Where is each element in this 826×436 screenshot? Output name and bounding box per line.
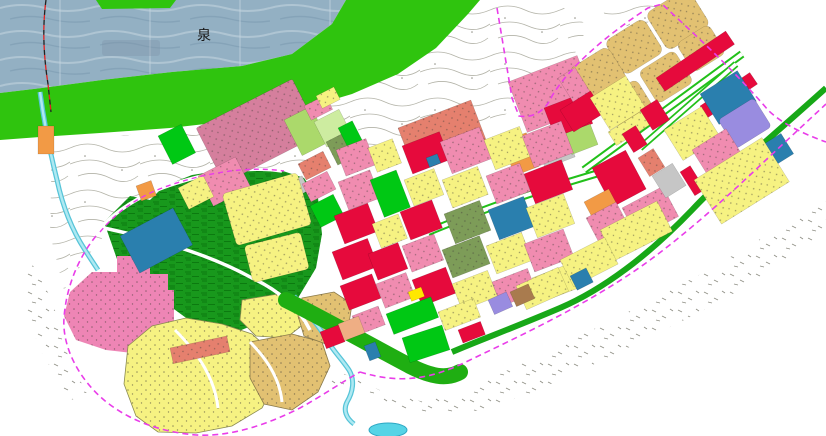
land-parcel-texture <box>372 214 407 248</box>
labels-layer: 泉 <box>197 27 211 44</box>
land-parcel-texture <box>442 166 488 208</box>
river-label: 泉 <box>197 27 211 44</box>
land-use-map-canvas: 泉 <box>0 0 826 436</box>
land-parcel <box>38 126 54 154</box>
land-parcel <box>402 325 450 363</box>
village-tan-lobe-texture <box>250 334 330 410</box>
land-parcel <box>412 267 456 306</box>
land-parcel-texture <box>526 194 575 238</box>
land-parcel-texture <box>404 169 444 207</box>
land-parcel-texture <box>486 232 532 274</box>
land-parcel-texture <box>402 234 444 272</box>
river-watermark-smudge <box>102 40 160 56</box>
map-render-root: 泉 <box>0 0 826 436</box>
north-bank-green-sliver <box>96 0 176 9</box>
land-parcel-texture <box>442 236 490 278</box>
pond <box>369 423 407 436</box>
land-use-map: 泉 <box>0 0 826 436</box>
